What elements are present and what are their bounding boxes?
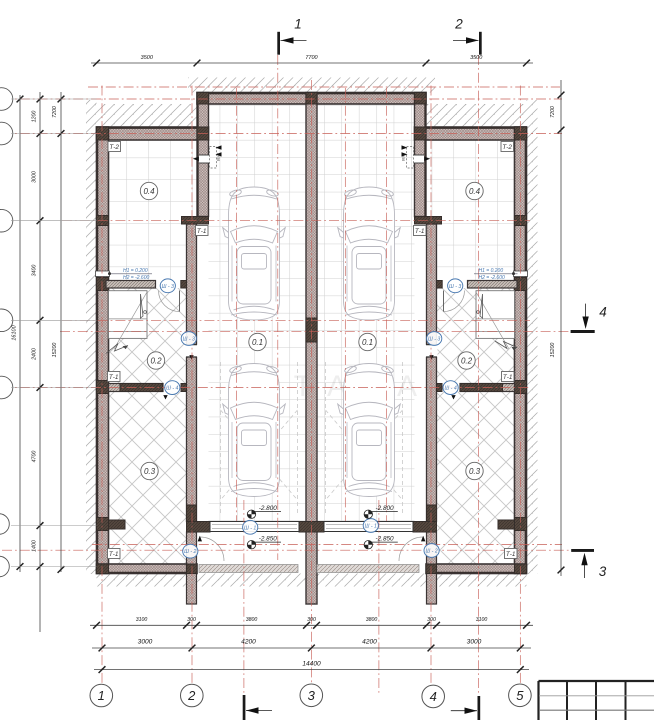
svg-text:H1 = 0.200: H1 = 0.200 (479, 268, 504, 274)
svg-text:14400: 14400 (302, 660, 321, 667)
svg-text:3400: 3400 (32, 265, 38, 277)
svg-text:0.3: 0.3 (144, 467, 156, 476)
svg-text:15200: 15200 (550, 343, 556, 358)
svg-text:0.3: 0.3 (469, 467, 481, 476)
svg-text:Ш - 1: Ш - 1 (365, 524, 377, 530)
svg-text:3500: 3500 (470, 55, 483, 61)
svg-text:Ш - 3: Ш - 3 (162, 284, 174, 290)
svg-text:16100: 16100 (12, 324, 18, 340)
svg-text:-2.850: -2.850 (376, 535, 395, 542)
svg-text:1: 1 (294, 17, 302, 32)
svg-text:H2 = -2.600: H2 = -2.600 (479, 275, 505, 281)
svg-text:0.2: 0.2 (461, 356, 473, 365)
svg-text:-2.800: -2.800 (376, 505, 395, 512)
svg-text:4200: 4200 (241, 639, 256, 646)
svg-text:Ш - 2: Ш - 2 (425, 549, 437, 555)
svg-text:3000: 3000 (32, 171, 38, 183)
svg-text:H2 = -2.600: H2 = -2.600 (123, 275, 149, 281)
svg-text:7200: 7200 (550, 106, 556, 118)
svg-text:3100: 3100 (476, 617, 488, 623)
svg-text:Т-2: Т-2 (502, 144, 512, 151)
svg-text:3100: 3100 (136, 617, 148, 623)
svg-text:300: 300 (307, 617, 316, 623)
svg-text:1200: 1200 (32, 111, 38, 123)
svg-text:3: 3 (599, 564, 607, 579)
svg-text:5: 5 (516, 688, 524, 703)
svg-text:Т-1: Т-1 (506, 551, 516, 558)
svg-text:7700: 7700 (305, 55, 318, 61)
svg-text:-2.800: -2.800 (259, 505, 278, 512)
svg-text:0.1: 0.1 (252, 338, 263, 347)
svg-text:2: 2 (454, 17, 463, 32)
svg-text:Ш - 2: Ш - 2 (184, 549, 196, 555)
svg-text:4200: 4200 (362, 639, 377, 646)
svg-text:2: 2 (187, 688, 196, 703)
svg-text:0.1: 0.1 (362, 338, 373, 347)
svg-text:Т-1: Т-1 (109, 374, 119, 381)
svg-text:Ш - 1: Ш - 1 (244, 525, 256, 531)
svg-text:0.4: 0.4 (469, 187, 481, 196)
svg-text:Т-1: Т-1 (197, 228, 207, 235)
svg-text:1: 1 (98, 688, 105, 703)
svg-text:300: 300 (187, 617, 196, 623)
svg-text:Ш - 4: Ш - 4 (166, 386, 178, 392)
svg-text:4700: 4700 (32, 451, 38, 463)
svg-text:0.2: 0.2 (150, 356, 162, 365)
svg-text:H1 = 0.200: H1 = 0.200 (123, 268, 148, 274)
svg-text:Ш - 3: Ш - 3 (449, 284, 461, 290)
svg-text:Т-1: Т-1 (109, 551, 119, 558)
svg-text:2400: 2400 (32, 348, 38, 361)
svg-text:4: 4 (599, 305, 607, 320)
svg-text:4: 4 (430, 689, 437, 704)
svg-text:Ш - 3: Ш - 3 (428, 337, 440, 343)
svg-text:300: 300 (427, 617, 436, 623)
svg-text:Ш - 4: Ш - 4 (444, 386, 456, 392)
svg-text:-2.850: -2.850 (259, 535, 278, 542)
svg-text:3: 3 (308, 688, 316, 703)
svg-text:1400: 1400 (32, 540, 38, 552)
svg-text:Т-1: Т-1 (503, 374, 513, 381)
svg-text:Ш - 3: Ш - 3 (183, 337, 195, 343)
svg-text:3000: 3000 (138, 639, 153, 646)
svg-text:3800: 3800 (246, 617, 258, 623)
svg-text:7200: 7200 (52, 106, 58, 118)
svg-text:3000: 3000 (467, 639, 482, 646)
svg-text:3500: 3500 (141, 55, 154, 61)
svg-text:15200: 15200 (52, 343, 58, 358)
svg-text:0.4: 0.4 (143, 187, 155, 196)
svg-text:Т-1: Т-1 (415, 228, 425, 235)
svg-text:3800: 3800 (366, 617, 378, 623)
svg-text:Т-2: Т-2 (109, 144, 119, 151)
